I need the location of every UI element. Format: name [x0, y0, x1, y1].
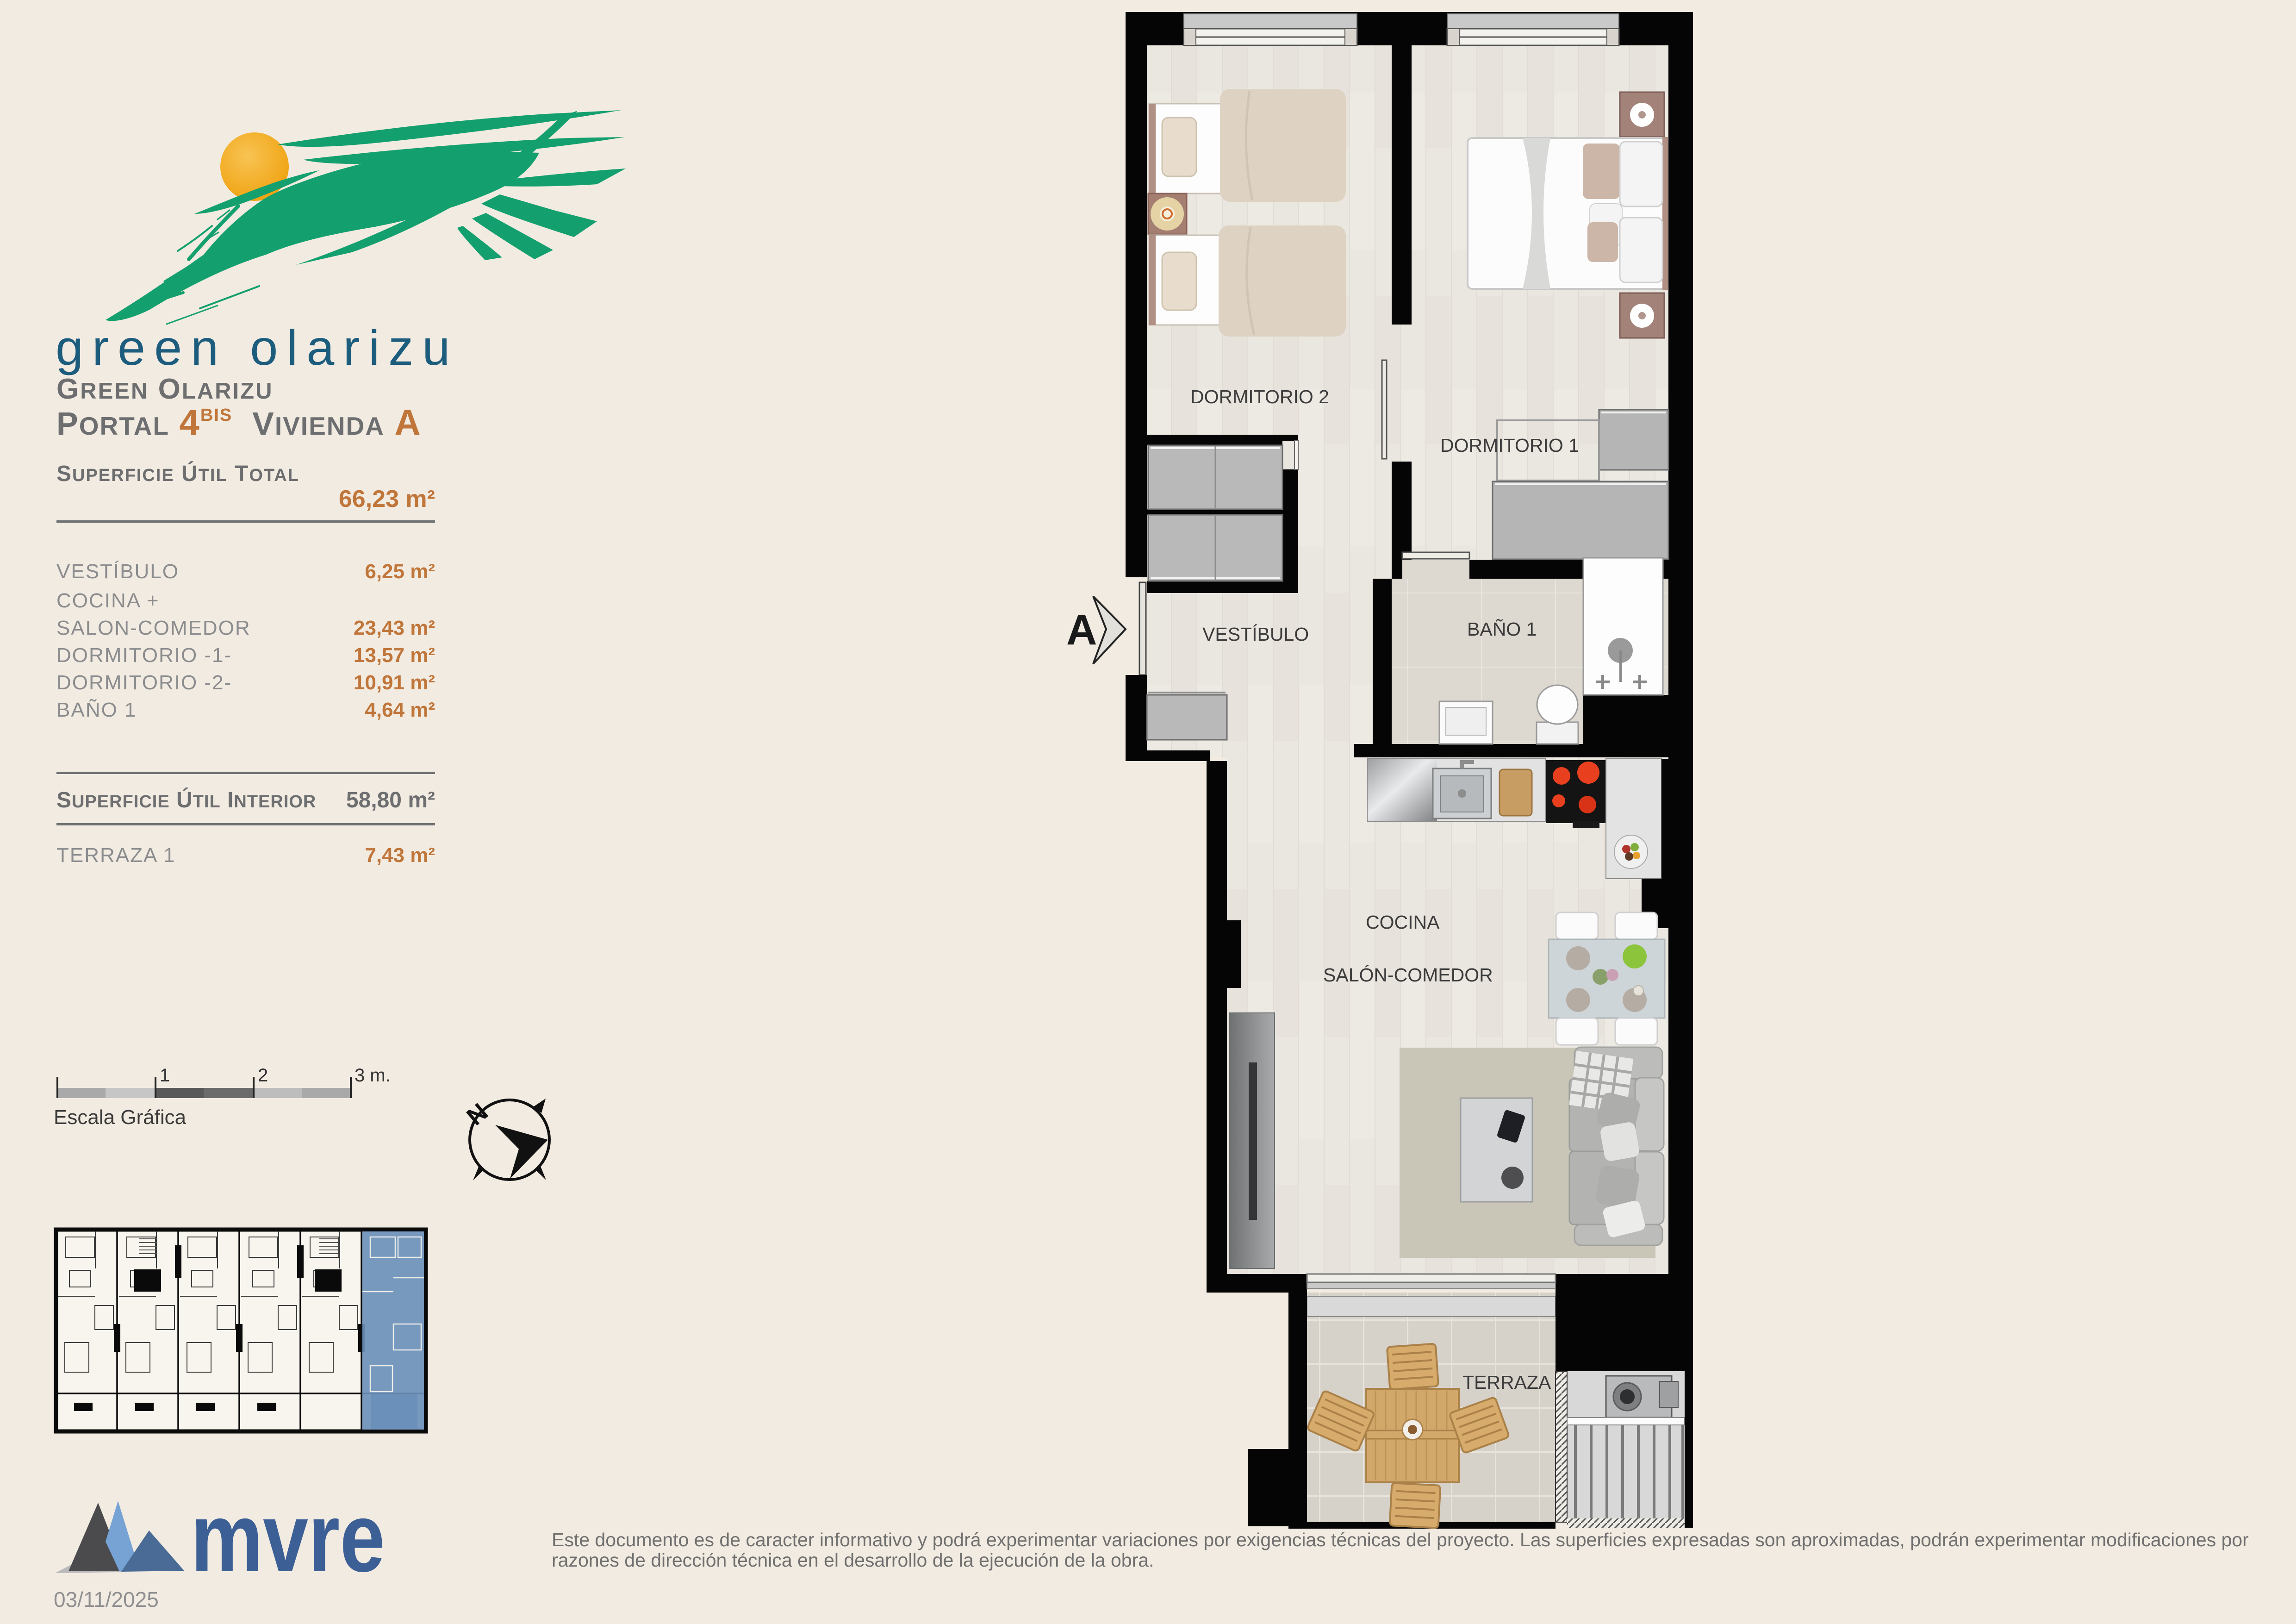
svg-text:2: 2: [258, 1065, 268, 1086]
svg-text:DORMITORIO 1: DORMITORIO 1: [1440, 435, 1579, 456]
svg-text:1: 1: [160, 1065, 170, 1086]
svg-text:DORMITORIO 2: DORMITORIO 2: [1190, 386, 1329, 407]
svg-text:N: N: [461, 1098, 493, 1131]
svg-text:Escala Gráfica: Escala Gráfica: [54, 1106, 187, 1129]
svg-text:green olarizu: green olarizu: [56, 319, 459, 375]
svg-text:COCINA: COCINA: [1366, 912, 1440, 933]
svg-text:3 m.: 3 m.: [355, 1065, 391, 1086]
svg-text:TERRAZA: TERRAZA: [1462, 1372, 1551, 1393]
svg-text:mvre: mvre: [191, 1482, 385, 1592]
svg-text:SALÓN-COMEDOR: SALÓN-COMEDOR: [1323, 964, 1493, 986]
svg-text:VESTÍBULO: VESTÍBULO: [1202, 624, 1309, 645]
svg-text:A: A: [1066, 606, 1097, 654]
svg-text:BAÑO 1: BAÑO 1: [1467, 618, 1537, 640]
